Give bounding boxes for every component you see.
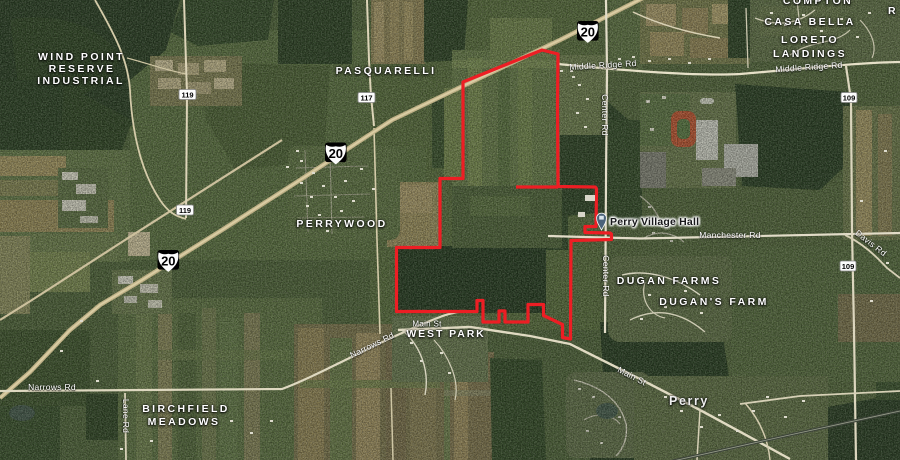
svg-text:119: 119 — [181, 90, 193, 99]
svg-text:109: 109 — [843, 93, 856, 102]
svg-text:119: 119 — [179, 206, 191, 215]
svg-text:20: 20 — [329, 146, 343, 161]
svg-text:20: 20 — [161, 254, 175, 269]
svg-text:109: 109 — [842, 262, 855, 271]
svg-text:20: 20 — [581, 25, 595, 40]
svg-text:117: 117 — [360, 93, 372, 102]
